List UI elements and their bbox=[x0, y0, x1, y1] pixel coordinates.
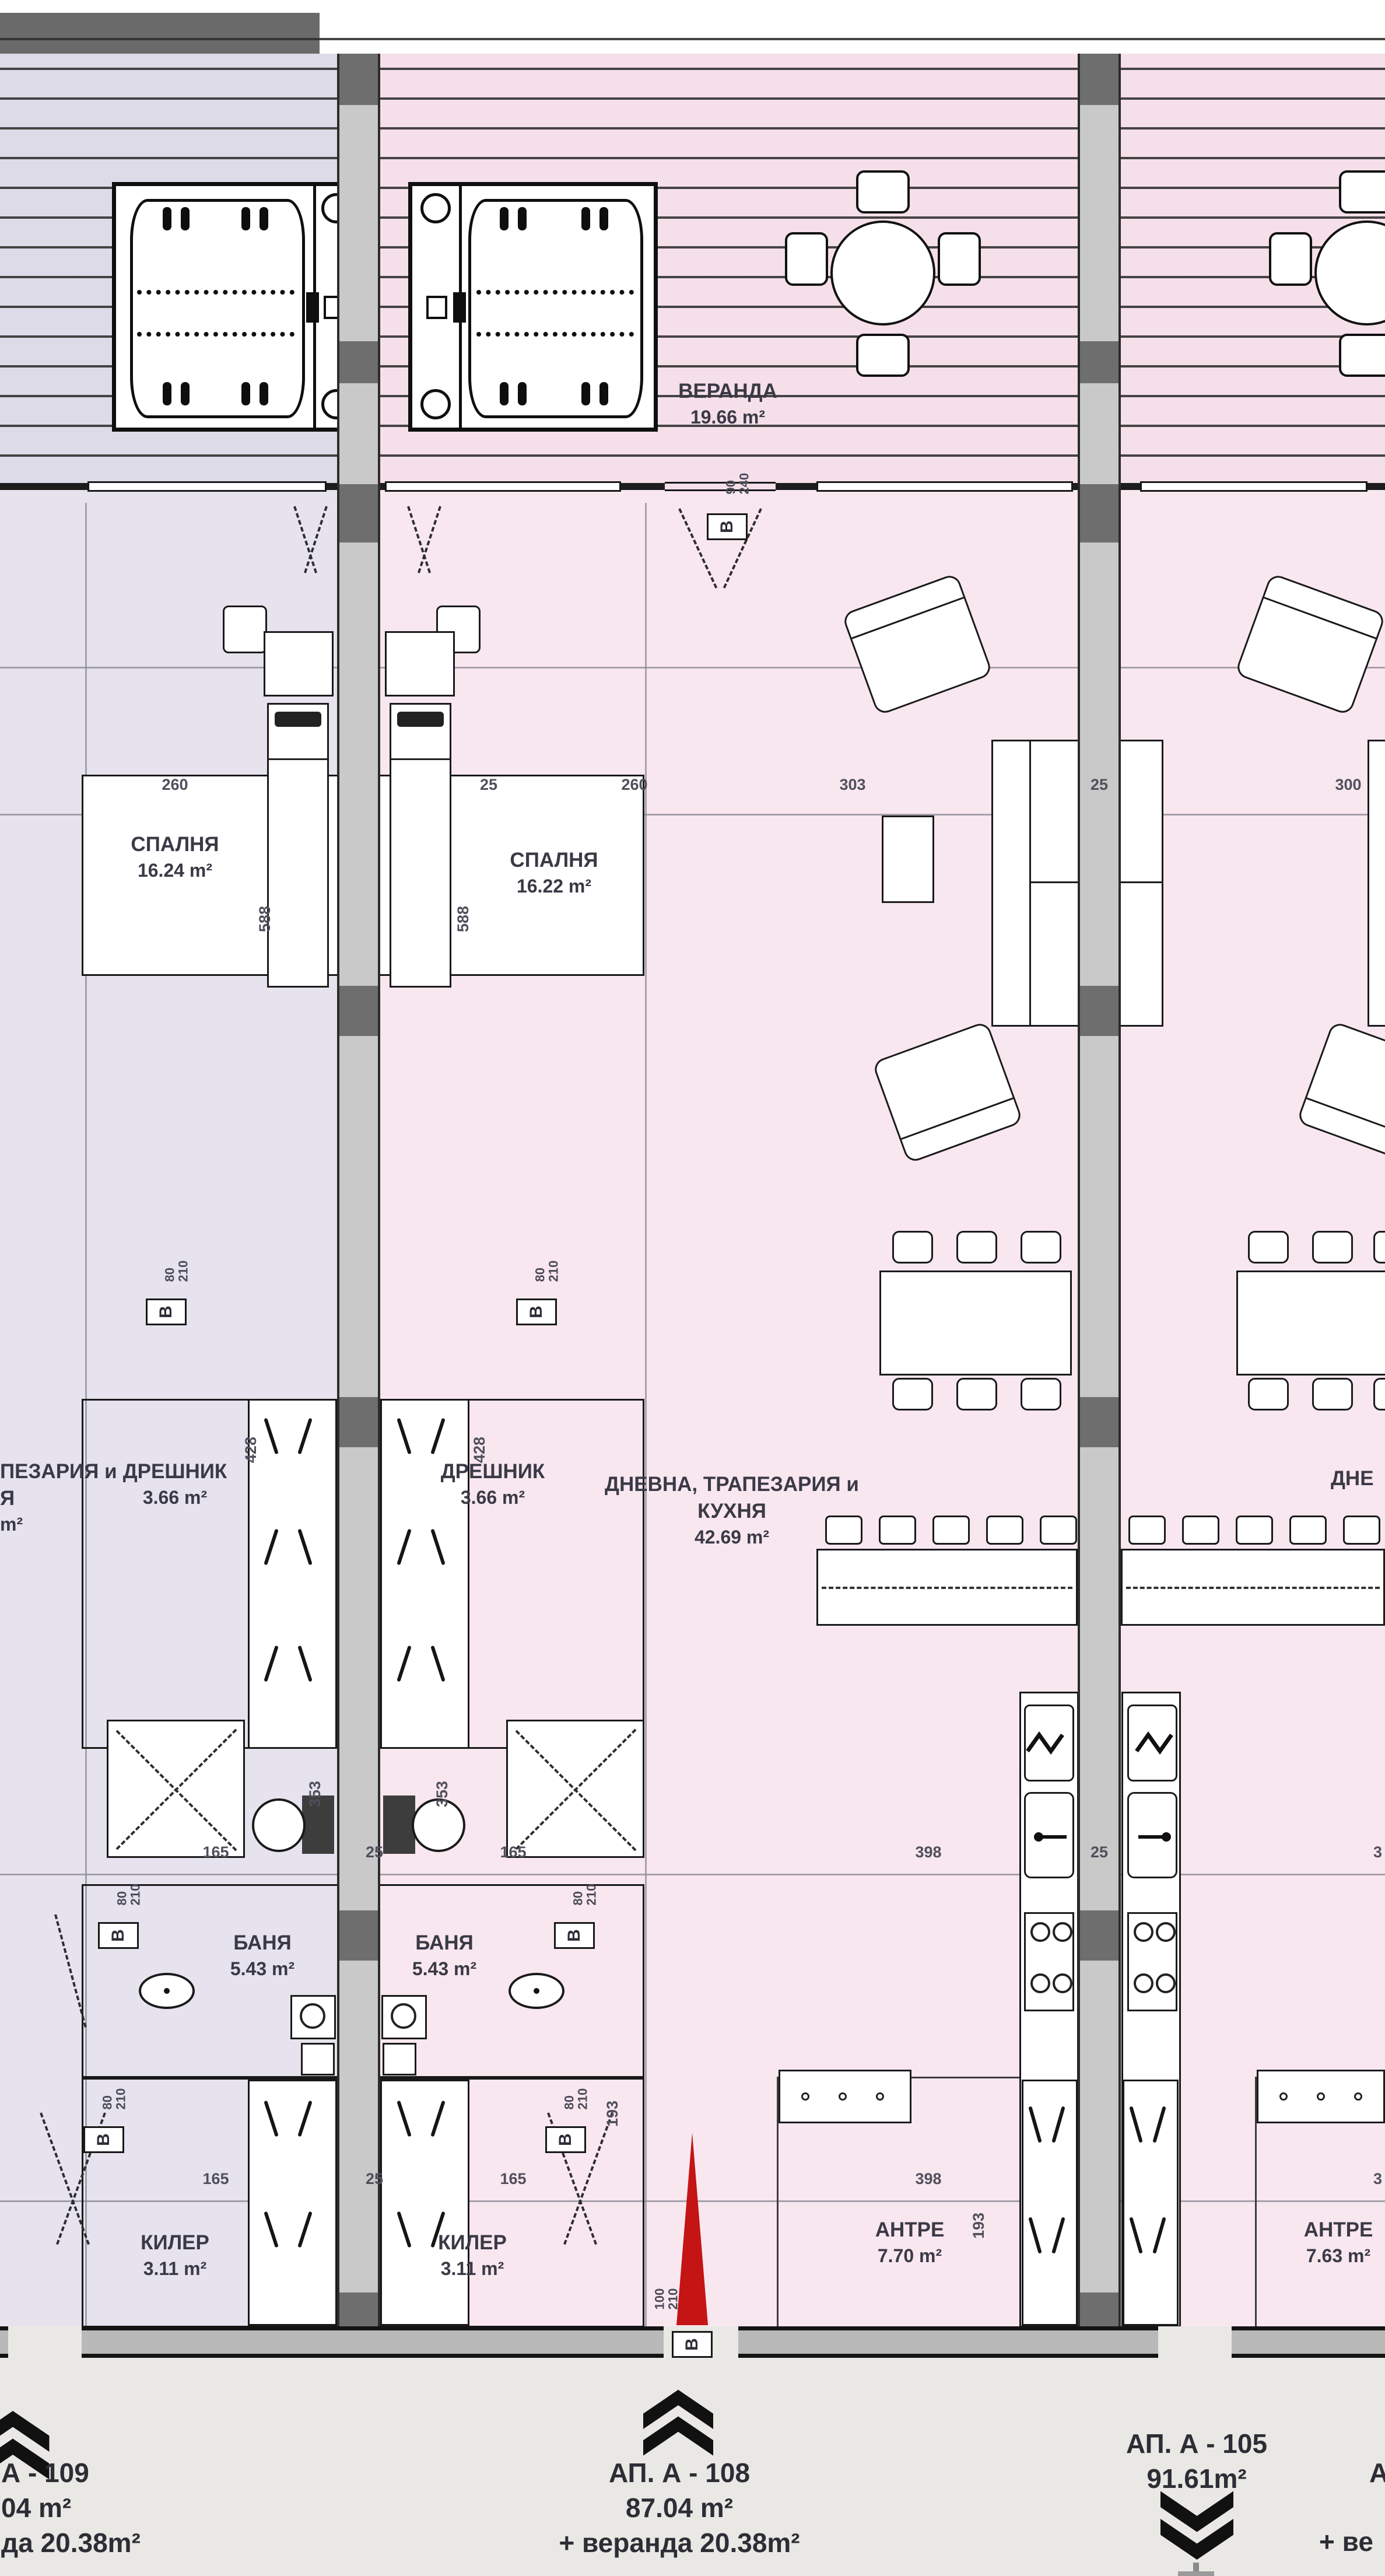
veranda-chair bbox=[1339, 334, 1385, 377]
kitchen-sink bbox=[1024, 1792, 1074, 1878]
bar-stool bbox=[1040, 1515, 1077, 1545]
bar-stool bbox=[986, 1515, 1023, 1545]
dim: 300 bbox=[1335, 776, 1361, 794]
dining-chair bbox=[956, 1231, 997, 1263]
dim: 25 bbox=[480, 776, 497, 794]
bed bbox=[267, 703, 329, 988]
dim: 260 bbox=[621, 776, 647, 794]
room-label-living-109-fragment: ПЕЗАРИЯ и Я m² bbox=[0, 1458, 117, 1537]
dim: 398 bbox=[915, 2170, 941, 2188]
dining-chair bbox=[1021, 1378, 1061, 1410]
dim: 165 bbox=[500, 2170, 526, 2188]
dining-table bbox=[1236, 1270, 1385, 1375]
room-label-entry-105: АНТРЕ 7.63 m² bbox=[1304, 2217, 1373, 2268]
door-tag-size: 100210 bbox=[653, 2288, 679, 2310]
double-chevron-up-icon bbox=[634, 2387, 722, 2457]
room-label-living-105-fragment: ДНЕ bbox=[1331, 1465, 1374, 1492]
room-label-bedroom-108: СПАЛНЯ 16.22 m² bbox=[510, 847, 598, 898]
double-chevron-down-icon bbox=[1152, 2490, 1242, 2563]
dim-vertical: 193 bbox=[970, 2213, 988, 2239]
washbasin-circle bbox=[300, 2003, 325, 2029]
floor-plan: ВЕРАНДА 19.66 m² bbox=[0, 0, 1385, 2576]
veranda-area: 19.66 m² bbox=[678, 405, 777, 429]
dim: 25 bbox=[1091, 776, 1108, 794]
apt105-label: АП. А - 105 91.61m² bbox=[1126, 2427, 1267, 2497]
door-tag: В bbox=[554, 1922, 595, 1949]
door-tag: В bbox=[516, 1298, 557, 1325]
dim-vertical: 353 bbox=[306, 1781, 324, 1807]
boiler bbox=[383, 2043, 416, 2075]
dining-chair bbox=[892, 1231, 933, 1263]
door-tag: В bbox=[146, 1298, 187, 1325]
washing-machine-icon bbox=[1024, 1704, 1074, 1781]
bed bbox=[390, 703, 451, 988]
dining-chair bbox=[1021, 1231, 1061, 1263]
bar-stool bbox=[1236, 1515, 1273, 1545]
party-wall bbox=[337, 54, 380, 2358]
veranda-chair bbox=[856, 334, 910, 377]
room-label-closet-108: ДРЕШНИК 3.66 m² bbox=[441, 1458, 545, 1510]
room-label-storage-109: КИЛЕР 3.11 m² bbox=[141, 2229, 209, 2281]
antre-closet bbox=[1022, 2080, 1078, 2326]
kitchen-sink bbox=[1127, 1792, 1177, 1878]
apt108-entry-icon bbox=[634, 2387, 722, 2457]
dining-chair bbox=[1312, 1231, 1353, 1263]
door-tag: В bbox=[83, 2126, 124, 2153]
bar-counter bbox=[1121, 1549, 1385, 1626]
dim: 25 bbox=[366, 1843, 383, 1861]
dim: 25 bbox=[366, 2170, 383, 2188]
bath-sink-dot bbox=[534, 1988, 539, 1994]
dim-vertical: 428 bbox=[471, 1437, 489, 1463]
door-tag: В bbox=[545, 2126, 586, 2153]
wardrobe-strip bbox=[380, 1399, 469, 1749]
veranda-name: ВЕРАНДА bbox=[678, 378, 777, 405]
apt105-entry-icon bbox=[1152, 2490, 1242, 2563]
room-label-storage-108: КИЛЕР 3.11 m² bbox=[438, 2229, 507, 2281]
washing-machine-icon bbox=[1127, 1704, 1177, 1781]
dining-chair bbox=[956, 1378, 997, 1410]
storage-closet bbox=[380, 2080, 469, 2326]
cabinet-sparkle bbox=[1257, 2070, 1385, 2123]
dim-vertical: 193 bbox=[604, 2101, 622, 2127]
nightstand bbox=[223, 605, 267, 653]
apt-right-fragment: А bbox=[1369, 2456, 1385, 2491]
dim-vertical: 353 bbox=[433, 1781, 451, 1807]
dining-chair bbox=[1312, 1378, 1353, 1410]
toilet-tank bbox=[383, 1796, 415, 1854]
door-tag-size: 80210 bbox=[115, 1884, 142, 1906]
bar-counter bbox=[816, 1549, 1078, 1626]
jacuzzi bbox=[112, 182, 362, 432]
veranda-table bbox=[830, 220, 935, 325]
toilet-bowl bbox=[252, 1798, 306, 1852]
storage-closet bbox=[248, 2080, 337, 2326]
door-tag-size: 80210 bbox=[100, 2088, 127, 2110]
dim: 303 bbox=[839, 776, 865, 794]
bar-stool bbox=[1289, 1515, 1327, 1545]
dim: 165 bbox=[500, 1843, 526, 1861]
bar-stool bbox=[1343, 1515, 1380, 1545]
stove bbox=[1127, 1912, 1177, 2011]
room-label-closet-109: ДРЕШНИК 3.66 m² bbox=[123, 1458, 227, 1510]
dim: 165 bbox=[202, 1843, 229, 1861]
dining-chair bbox=[1248, 1378, 1289, 1410]
washbasin-circle bbox=[391, 2003, 416, 2029]
veranda-chair bbox=[938, 232, 981, 286]
terrace-door-gap bbox=[665, 482, 776, 491]
room-label-living-108: ДНЕВНА, ТРАПЕЗАРИЯ и КУХНЯ 42.69 m² bbox=[605, 1471, 859, 1550]
apt108-label: АП. А - 108 87.04 m² + веранда 20.38m² bbox=[559, 2456, 800, 2560]
cabinet-sparkle bbox=[779, 2070, 911, 2123]
boiler bbox=[301, 2043, 335, 2075]
dining-chair bbox=[892, 1378, 933, 1410]
apt105-stand-base bbox=[1178, 2571, 1214, 2576]
antre-closet bbox=[1123, 2080, 1179, 2326]
door-tag-size: 80210 bbox=[571, 1884, 598, 1906]
window bbox=[385, 481, 621, 492]
dim: 165 bbox=[202, 2170, 229, 2188]
wardrobe bbox=[385, 631, 455, 696]
jacuzzi bbox=[408, 182, 658, 432]
apt109-label: А - 109 04 m² да 20.38m² bbox=[1, 2456, 141, 2560]
dim: 3 bbox=[1373, 2170, 1382, 2188]
apt-right-fragment2: + ве bbox=[1319, 2525, 1373, 2560]
dim-vertical: 588 bbox=[454, 906, 472, 932]
dining-chair bbox=[1373, 1378, 1385, 1410]
wardrobe bbox=[264, 631, 334, 696]
room-label-bedroom-109: СПАЛНЯ 16.24 m² bbox=[131, 831, 219, 883]
door-tag: В bbox=[98, 1922, 139, 1949]
room-label-entry-108: АНТРЕ 7.70 m² bbox=[875, 2217, 945, 2268]
dim: 260 bbox=[162, 776, 188, 794]
veranda-chair bbox=[856, 170, 910, 213]
door-tag-size: 80210 bbox=[533, 1261, 560, 1282]
entry-door-gap bbox=[8, 2326, 82, 2358]
entry-door-gap bbox=[1158, 2326, 1232, 2358]
bar-stool bbox=[879, 1515, 916, 1545]
door-tag-size: 80210 bbox=[562, 2088, 589, 2110]
bar-stool bbox=[932, 1515, 970, 1545]
dining-chair bbox=[1373, 1231, 1385, 1263]
room-label-bath-109: БАНЯ 5.43 m² bbox=[230, 1930, 294, 1981]
door-tag-size: 90240 bbox=[724, 473, 751, 495]
room-label-bath-108: БАНЯ 5.43 m² bbox=[412, 1930, 476, 1981]
dining-table bbox=[879, 1270, 1072, 1375]
veranda-chair bbox=[1339, 170, 1385, 213]
dim-vertical: 428 bbox=[242, 1437, 260, 1463]
window bbox=[87, 481, 327, 492]
veranda-chair bbox=[1269, 232, 1312, 286]
side-table bbox=[882, 815, 934, 903]
dining-chair bbox=[1248, 1231, 1289, 1263]
bar-stool bbox=[1182, 1515, 1219, 1545]
door-tag: В bbox=[707, 513, 748, 540]
stove bbox=[1024, 1912, 1074, 2011]
dim-vertical: 588 bbox=[256, 906, 274, 932]
veranda-chair bbox=[785, 232, 828, 286]
wardrobe-strip bbox=[248, 1399, 337, 1749]
dim: 3 bbox=[1373, 1843, 1382, 1861]
veranda-label: ВЕРАНДА 19.66 m² bbox=[678, 378, 777, 429]
sofa-partial bbox=[1368, 740, 1385, 1027]
party-wall bbox=[1078, 54, 1121, 2358]
dim: 398 bbox=[915, 1843, 941, 1861]
door-tag: В bbox=[672, 2331, 713, 2358]
door-tag-size: 80210 bbox=[163, 1261, 190, 1282]
window bbox=[1140, 481, 1368, 492]
bath-sink-dot bbox=[164, 1988, 170, 1994]
dim: 25 bbox=[1091, 1843, 1108, 1861]
grid-line bbox=[0, 667, 1385, 668]
window bbox=[816, 481, 1073, 492]
bar-stool bbox=[1128, 1515, 1166, 1545]
